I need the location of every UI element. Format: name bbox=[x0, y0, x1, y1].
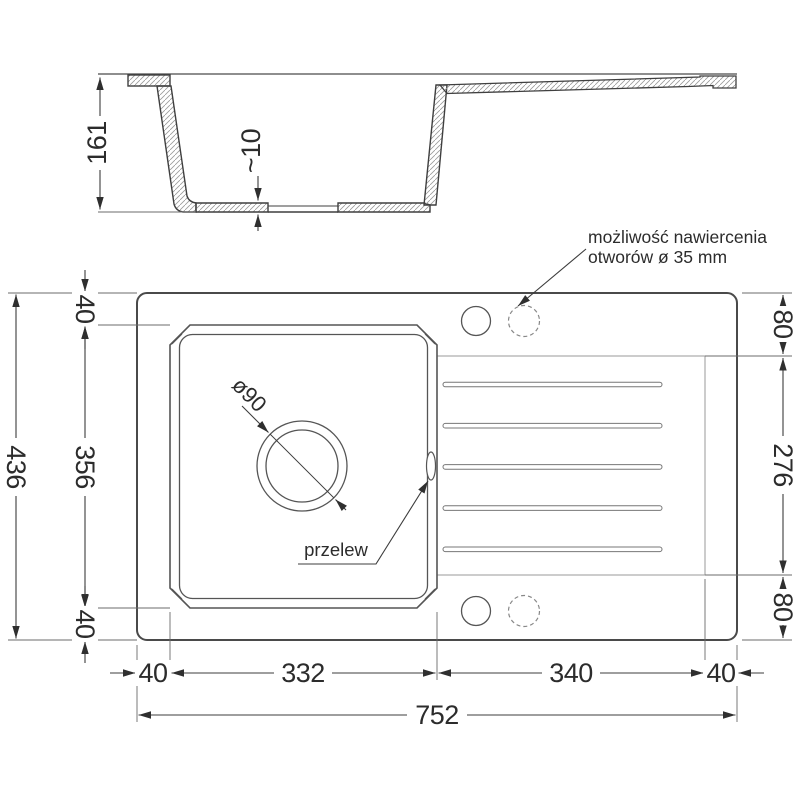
section-drain-recess bbox=[268, 203, 338, 206]
section-drainboard-profile bbox=[440, 76, 736, 94]
drainer-groove-1 bbox=[443, 382, 662, 387]
drill-note-line2: otworów ø 35 mm bbox=[588, 247, 727, 267]
section-right-wall bbox=[424, 85, 447, 205]
dim-text-356-group: 356 bbox=[70, 438, 100, 496]
dim-drainer-width: 340 bbox=[549, 658, 593, 688]
dim-text-40bot-group: 40 bbox=[70, 606, 100, 642]
dim-text-276-group: 276 bbox=[768, 436, 798, 494]
faucet-hole-top bbox=[462, 307, 491, 336]
dim-total-depth: 436 bbox=[1, 445, 31, 489]
dim-drainer-depth: 276 bbox=[768, 443, 798, 487]
section-left-rim bbox=[128, 75, 170, 86]
section-view: 161 ~10 bbox=[82, 74, 737, 231]
dim-bowl-width: 332 bbox=[281, 658, 325, 688]
drainer-groove-3 bbox=[443, 465, 662, 470]
dim-text-80bot-group: 80 bbox=[768, 589, 798, 625]
section-left-wall bbox=[157, 86, 196, 212]
dim-top-margin: 40 bbox=[70, 294, 100, 323]
dim-text-340-group: 340 bbox=[542, 658, 600, 688]
dim-bowl-depth: 356 bbox=[70, 445, 100, 489]
dim-text-752-group: 752 bbox=[407, 700, 467, 730]
dim-text-161-group: 161 bbox=[82, 116, 112, 170]
dim-text-40left-group: 40 bbox=[135, 658, 171, 688]
drainer-groove-2 bbox=[443, 423, 662, 428]
dim-section-height: 161 bbox=[82, 121, 112, 165]
dim-left-margin: 40 bbox=[138, 658, 167, 688]
dim-bottom-margin: 40 bbox=[70, 609, 100, 638]
section-floor-right bbox=[338, 203, 430, 212]
faucet-hole-bottom bbox=[462, 597, 491, 626]
dim-text-436-group: 436 bbox=[1, 438, 31, 496]
section-floor-left bbox=[196, 203, 268, 212]
plan-view: ø90 przelew możliwość nawiercenia otworó… bbox=[137, 227, 767, 640]
drill-note-line1: możliwość nawiercenia bbox=[588, 227, 767, 247]
bowl-outline bbox=[170, 325, 437, 608]
dim-text-332-group: 332 bbox=[274, 658, 332, 688]
dim-hole-offset-bottom: 80 bbox=[768, 592, 798, 621]
dim-text-floor-group: ~10 bbox=[236, 129, 266, 173]
dim-total-width: 752 bbox=[415, 700, 459, 730]
dim-text-40top-group: 40 bbox=[70, 291, 100, 327]
overflow-label: przelew bbox=[304, 539, 368, 560]
drainer-groove-5 bbox=[443, 547, 662, 552]
drainer-groove-4 bbox=[443, 506, 662, 511]
dim-text-80top-group: 80 bbox=[768, 306, 798, 342]
technical-drawing: 161 ~10 ø90 przelew bbox=[0, 0, 800, 800]
overflow-slot bbox=[427, 452, 436, 480]
dim-floor-thickness: ~10 bbox=[236, 129, 266, 173]
dim-hole-offset-top: 80 bbox=[768, 309, 798, 338]
dim-text-40right-group: 40 bbox=[703, 658, 739, 688]
sink-technical-drawing-page: 161 ~10 ø90 przelew bbox=[0, 0, 800, 800]
dim-right-margin: 40 bbox=[706, 658, 735, 688]
